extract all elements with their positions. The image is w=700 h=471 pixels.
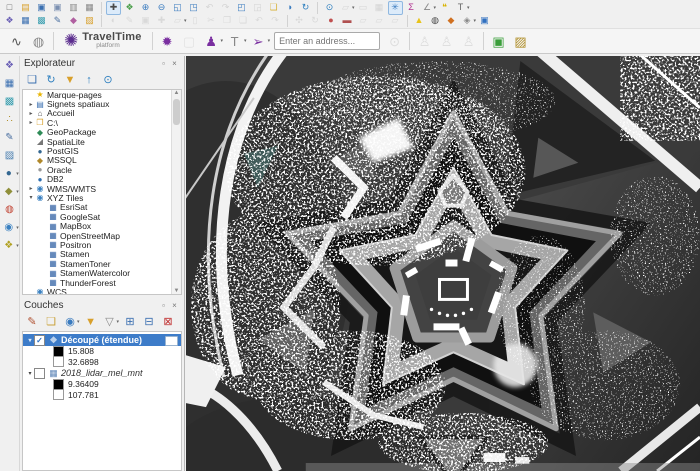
browser-item-spatialite-icon: ◢ — [35, 137, 45, 146]
traveltime-walk-2-icon[interactable]: ♙ — [436, 31, 457, 52]
layer-legend-entry: 32.6898 — [23, 357, 181, 368]
python-console-icon[interactable]: ▣ — [477, 14, 492, 28]
toolbar-separator — [409, 32, 410, 50]
zoom-in-icon[interactable]: ⊕ — [138, 1, 153, 15]
browser-item-googlesat[interactable]: ▦GoogleSat — [23, 212, 181, 221]
add-mesh-layer-icon[interactable]: ▩ — [1, 94, 18, 109]
add-postgis-layer-icon[interactable]: ● — [0, 166, 17, 181]
add-wms-layer-icon[interactable]: ◉ — [0, 220, 17, 235]
browser-item-db2-icon: ● — [35, 175, 45, 184]
browser-collapse-all-icon[interactable]: ↑ — [81, 72, 97, 88]
cut-features-icon[interactable]: ✂ — [204, 14, 219, 28]
osm-clear-icon[interactable]: ▬ — [340, 14, 355, 28]
browser-item-esrisat-icon: ▦ — [48, 203, 58, 212]
expander-icon[interactable]: ▸ — [27, 110, 35, 117]
browser-filter-icon[interactable]: ▼ — [62, 72, 78, 88]
add-wms-layer-icon[interactable]: ▨ — [82, 14, 97, 28]
dropdown-caret-icon[interactable]: ▾ — [268, 38, 271, 44]
browser-add-selected-layers-icon[interactable]: ❏ — [24, 72, 40, 88]
browser-item-mssql-icon: ◆ — [35, 156, 45, 165]
layer-legend-entry: 9.36409 — [23, 379, 181, 390]
collapse-all-icon[interactable]: ⊟ — [141, 314, 157, 330]
dock-panels: Explorateur ▫ × ❏↻▼↑⊙ ★Marque-pages▸▤Sig… — [20, 56, 185, 471]
address-input[interactable] — [274, 32, 380, 50]
dropdown-caret-icon[interactable]: ▾ — [434, 5, 437, 11]
add-virtual-layer-icon[interactable]: ❖ — [0, 238, 17, 253]
paste-features-icon[interactable]: ❏ — [236, 14, 251, 28]
browser-item-accueil[interactable]: ▸⌂Accueil — [23, 109, 181, 118]
add-mesh-layer-icon[interactable]: ▩ — [34, 14, 49, 28]
add-spatialite-layer-icon[interactable]: ◆ — [66, 14, 81, 28]
zoom-out-icon[interactable]: ⊖ — [154, 1, 169, 15]
layer-type-icon: ▦ — [48, 368, 59, 379]
add-oracle-layer-icon[interactable]: ◍ — [1, 202, 18, 217]
browser-item-spatialite[interactable]: ◢SpatiaLite — [23, 137, 181, 146]
browser-item-positron[interactable]: ▦Positron — [23, 240, 181, 249]
copy-features-icon[interactable]: ❐ — [220, 14, 235, 28]
browser-item-c--icon: ❒ — [35, 118, 45, 127]
expander-icon[interactable]: ▾ — [26, 370, 34, 377]
toolbar-row-layers-digitizing: ❖▦▩✎◆▨◐✎▣✚▱▾▯✂❐❏↶↷✣↻●▬▱▱▱▲◍◆◈▾▣ — [2, 14, 492, 27]
expander-icon[interactable]: ▾ — [27, 194, 35, 201]
open-attribute-table-icon[interactable]: ▦ — [372, 1, 387, 15]
save-edits-icon[interactable]: ▣ — [138, 14, 153, 28]
browser-item-postgis[interactable]: ●PostGIS — [23, 146, 181, 155]
browser-item-wms-wmts-icon: ◉ — [35, 184, 45, 193]
browser-toolbar: ❏↻▼↑⊙ — [20, 71, 184, 89]
legend-value: 9.36409 — [68, 379, 99, 389]
pan-to-selection-icon[interactable]: ❖ — [122, 1, 137, 15]
zoom-full-icon[interactable]: ◱ — [170, 1, 185, 15]
add-spatialite-layer-icon[interactable]: ▨ — [1, 148, 18, 163]
zoom-to-layer-icon[interactable]: ◰ — [234, 1, 249, 15]
browser-item-wcs[interactable]: ◉WCS — [23, 287, 181, 295]
dropdown-caret-icon[interactable]: ▾ — [77, 319, 80, 325]
browser-item-stamenwatercolor[interactable]: ▦StamenWatercolor — [23, 268, 181, 277]
toolbar-row-main: □▤▣▣▥▦✚❖⊕⊖◱◳↶↷◰◲❏◑↻⊙▱▾▭▦✳Σ∠▾❝T▾ — [2, 1, 470, 14]
statistical-summary-icon[interactable]: Σ — [404, 1, 419, 15]
browser-item-signets-spatiaux-icon: ▤ — [35, 100, 45, 109]
browser-item-oracle-icon: ● — [35, 165, 45, 174]
traveltime-disabled-icon[interactable]: ▢ — [179, 31, 200, 52]
add-point-cloud-layer-icon[interactable]: ∴ — [1, 112, 18, 127]
filter-legend-expression-icon[interactable]: ▽ — [102, 314, 118, 330]
project-new-icon[interactable]: □ — [2, 1, 17, 15]
qgis-window: □▤▣▣▥▦✚❖⊕⊖◱◳↶↷◰◲❏◑↻⊙▱▾▭▦✳Σ∠▾❝T▾ ❖▦▩✎◆▨◐✎… — [0, 0, 700, 471]
browser-close-button[interactable]: × — [169, 59, 180, 68]
project-open-icon[interactable]: ▤ — [18, 1, 33, 15]
toolbar-separator — [152, 32, 153, 50]
scroll-up-icon[interactable]: ▲ — [174, 90, 180, 96]
layer-item[interactable]: ▾✓❖Découpé (étendue) — [23, 334, 181, 346]
new-map-view-icon[interactable]: ❏ — [266, 1, 281, 15]
select-features-icon[interactable]: ▱ — [338, 1, 353, 15]
browser-item-stamentoner[interactable]: ▦StamenToner — [23, 259, 181, 268]
georeferencer-icon[interactable]: ◍ — [428, 14, 443, 28]
toolbar-separator — [483, 32, 484, 50]
text-annotation-icon[interactable]: T — [453, 1, 468, 15]
refresh-map-icon[interactable]: ↻ — [298, 1, 313, 15]
browser-item-wms-wmts[interactable]: ▸◉WMS/WMTS — [23, 184, 181, 193]
expander-icon[interactable]: ▸ — [27, 185, 35, 192]
add-vector-layer-icon[interactable]: ❖ — [1, 58, 18, 73]
delete-selected-icon[interactable]: ▯ — [188, 14, 203, 28]
pan-map-icon[interactable]: ✚ — [106, 1, 121, 15]
toolbar-separator — [53, 32, 54, 50]
dropdown-caret-icon[interactable]: ▾ — [474, 18, 477, 24]
browser-item-stamentoner-icon: ▦ — [48, 259, 58, 268]
osm-place-search-icon[interactable]: ● — [324, 14, 339, 28]
map-tips-icon[interactable]: ❝ — [437, 1, 452, 15]
map-annotation-icon[interactable]: ▨ — [510, 31, 531, 52]
metasearch-icon[interactable]: ∿ — [6, 31, 27, 52]
legend-value: 15.808 — [68, 346, 94, 356]
layer-visibility-checkbox[interactable]: ✓ — [34, 335, 45, 346]
toolbar-row-plugins: ∿◍ ✺ TravelTime platform ✹▢♟▾T▾➢▾ ⊙ ♙♙♙ … — [0, 28, 700, 54]
rotate-feature-icon[interactable]: ↻ — [308, 14, 323, 28]
layer-name: 2018_lidar_mel_mnt — [61, 368, 143, 378]
traveltime-walk-1-icon[interactable]: ♙ — [414, 31, 435, 52]
add-vector-layer-icon[interactable]: ❖ — [2, 14, 17, 28]
map-render — [186, 56, 700, 471]
browser-item-openstreetmap[interactable]: ▦OpenStreetMap — [23, 231, 181, 240]
layers-toolbar: ✎❏◉▾▼▽▾⊞⊟⊠ — [20, 313, 184, 331]
browser-item-db2[interactable]: ●DB2 — [23, 175, 181, 184]
browser-item-googlesat-icon: ▦ — [48, 212, 58, 221]
expander-icon[interactable]: ▸ — [27, 119, 35, 126]
add-group-icon[interactable]: ❏ — [43, 314, 59, 330]
remove-layer-icon[interactable]: ⊠ — [160, 314, 176, 330]
zoom-to-native-icon[interactable]: ◳ — [186, 1, 201, 15]
add-mssql-layer-icon[interactable]: ◆ — [0, 184, 17, 199]
browser-item-geopackage-icon: ◆ — [35, 128, 45, 137]
identify-features-icon[interactable]: ⊙ — [322, 1, 337, 15]
temporal-controller-icon[interactable]: ◑ — [282, 1, 297, 15]
browser-panel-titlebar: Explorateur ▫ × — [20, 56, 184, 71]
browser-item-label: WCS — [47, 287, 67, 295]
dropdown-caret-icon[interactable]: ▾ — [16, 243, 19, 249]
layers-float-button[interactable]: ▫ — [158, 301, 169, 310]
browser-panel-title: Explorateur — [24, 58, 158, 69]
add-feature-icon[interactable]: ✚ — [154, 14, 169, 28]
browser-item-oracle[interactable]: ●Oracle — [23, 165, 181, 174]
project-save-icon[interactable]: ▣ — [34, 1, 49, 15]
legend-value: 107.781 — [68, 390, 99, 400]
browser-item-xyz-tiles-icon: ◉ — [35, 193, 45, 202]
filter-legend-icon[interactable]: ▼ — [83, 314, 99, 330]
zoom-next-icon[interactable]: ↷ — [218, 1, 233, 15]
traveltime-quick-map-icon[interactable]: ✹ — [157, 31, 178, 52]
dropdown-caret-icon[interactable]: ▾ — [221, 38, 224, 44]
toolbar-separator — [101, 2, 102, 14]
browser-item-signets-spatiaux[interactable]: ▸▤Signets spatiaux — [23, 99, 181, 108]
browser-float-button[interactable]: ▫ — [158, 59, 169, 68]
traveltime-logo-subtitle: platform — [96, 43, 141, 50]
toolbar-separator — [101, 15, 102, 27]
layer-item[interactable]: ▾▦2018_lidar_mel_mnt — [23, 367, 181, 379]
browser-scrollbar-thumb[interactable] — [173, 99, 180, 125]
add-raster-layer-icon[interactable]: ▦ — [1, 76, 18, 91]
add-delimited-text-layer-icon[interactable]: ✎ — [1, 130, 18, 145]
tool-extra-1-icon[interactable]: ▱ — [356, 14, 371, 28]
current-edits-icon[interactable]: ◐ — [106, 14, 121, 28]
traveltime-routes-icon[interactable]: ➢ — [248, 31, 269, 52]
browser-item-thunderforest[interactable]: ▦ThunderForest — [23, 278, 181, 287]
browser-item-geopackage[interactable]: ◆GeoPackage — [23, 128, 181, 137]
legend-swatch — [53, 389, 64, 400]
browser-item-wcs-icon: ◉ — [35, 287, 45, 295]
expander-icon[interactable]: ▾ — [26, 337, 34, 344]
traveltime-time-filter-icon[interactable]: T — [224, 31, 245, 52]
layer-indicator-icon[interactable] — [165, 336, 178, 346]
browser-item-esrisat[interactable]: ▦EsriSat — [23, 203, 181, 212]
move-feature-icon[interactable]: ✣ — [292, 14, 307, 28]
layers-tree: ▾✓❖Découpé (étendue)15.80832.6898▾▦2018_… — [22, 331, 182, 471]
layers-panel-title: Couches — [24, 300, 158, 311]
show-layout-manager-icon[interactable]: ▦ — [82, 1, 97, 15]
browser-item-marque-pages[interactable]: ★Marque-pages — [23, 90, 181, 99]
toolbar-separator — [287, 15, 288, 27]
toolbar-separator — [317, 2, 318, 14]
toggle-editing-icon[interactable]: ✎ — [122, 14, 137, 28]
measure-icon[interactable]: ∠ — [420, 1, 435, 15]
scroll-down-icon[interactable]: ▼ — [174, 288, 180, 294]
plugin-style-icon[interactable]: ◈ — [460, 14, 475, 28]
browser-item-positron-icon: ▦ — [48, 240, 58, 249]
save-project-as-icon[interactable]: ▣ — [50, 1, 65, 15]
layer-legend-entry: 15.808 — [23, 346, 181, 357]
traveltime-logo-icon: ✺ — [64, 31, 78, 51]
browser-panel: Explorateur ▫ × ❏↻▼↑⊙ ★Marque-pages▸▤Sig… — [20, 56, 184, 295]
browser-properties-icon[interactable]: ⊙ — [100, 72, 116, 88]
quick-osm-icon[interactable]: ▣ — [488, 31, 509, 52]
add-raster-layer-icon[interactable]: ▦ — [18, 14, 33, 28]
map-canvas[interactable] — [186, 56, 700, 471]
undo-icon[interactable]: ↶ — [252, 14, 267, 28]
traveltime-walk-3-icon[interactable]: ♙ — [458, 31, 479, 52]
legend-swatch — [53, 346, 64, 357]
browser-item-postgis-icon: ● — [35, 147, 45, 156]
expander-icon[interactable]: ▸ — [27, 101, 35, 108]
browser-item-mapbox[interactable]: ▦MapBox — [23, 221, 181, 230]
browser-item-xyz-tiles[interactable]: ▾◉XYZ Tiles — [23, 193, 181, 202]
redo-icon[interactable]: ↷ — [268, 14, 283, 28]
dropdown-caret-icon[interactable]: ▾ — [16, 225, 19, 231]
layers-close-button[interactable]: × — [169, 301, 180, 310]
traveltime-logo: ✺ TravelTime platform — [64, 31, 142, 51]
add-delimited-text-layer-icon[interactable]: ✎ — [50, 14, 65, 28]
browser-item-thunderforest-icon: ▦ — [48, 278, 58, 287]
browser-refresh-icon[interactable]: ↻ — [43, 72, 59, 88]
browser-item-accueil-icon: ⌂ — [35, 109, 45, 118]
tool-extra-3-icon[interactable]: ▱ — [388, 14, 403, 28]
processing-toolbox-icon[interactable]: ✳ — [388, 1, 403, 15]
browser-item-stamen-icon: ▦ — [48, 250, 58, 259]
layer-visibility-checkbox[interactable] — [34, 368, 45, 379]
browser-item-marque-pages-icon: ★ — [35, 90, 45, 99]
browser-item-mapbox-icon: ▦ — [48, 222, 58, 231]
browser-item-stamenwatercolor-icon: ▦ — [48, 269, 58, 278]
legend-swatch — [53, 379, 64, 390]
browser-item-c-[interactable]: ▸❒C:\ — [23, 118, 181, 127]
new-print-layout-icon[interactable]: ▥ — [66, 1, 81, 15]
layer-legend-entry: 107.781 — [23, 390, 181, 401]
dropdown-caret-icon[interactable]: ▾ — [16, 171, 19, 177]
geocode-search-icon[interactable]: ⊙ — [384, 31, 405, 52]
qgis-web-icon[interactable]: ◍ — [28, 31, 49, 52]
layer-name: Découpé (étendue) — [61, 335, 142, 345]
vertex-tool-icon[interactable]: ▱ — [170, 14, 185, 28]
browser-item-mssql[interactable]: ◆MSSQL — [23, 156, 181, 165]
traveltime-time-map-icon[interactable]: ♟ — [201, 31, 222, 52]
browser-item-label: ThunderForest — [60, 278, 116, 288]
browser-item-openstreetmap-icon: ▦ — [48, 231, 58, 240]
plugin-orange-icon[interactable]: ◆ — [444, 14, 459, 28]
legend-swatch — [53, 356, 64, 367]
open-layer-styling-panel-icon[interactable]: ✎ — [24, 314, 40, 330]
dropdown-caret-icon[interactable]: ▾ — [16, 189, 19, 195]
tool-extra-2-icon[interactable]: ▱ — [372, 14, 387, 28]
layer-source-toolbar: ❖▦▩∴✎▨●▾◆▾◍◉▾❖▾ — [0, 56, 20, 471]
dropdown-caret-icon[interactable]: ▾ — [117, 319, 120, 325]
browser-tree: ★Marque-pages▸▤Signets spatiaux▸⌂Accueil… — [22, 89, 182, 295]
layers-panel: Couches ▫ × ✎❏◉▾▼▽▾⊞⊟⊠ ▾✓❖Découpé (étend… — [20, 298, 184, 471]
toolbar-separator — [407, 15, 408, 27]
dropdown-caret-icon[interactable]: ▾ — [244, 38, 247, 44]
expand-all-icon[interactable]: ⊞ — [122, 314, 138, 330]
browser-item-stamen[interactable]: ▦Stamen — [23, 250, 181, 259]
layers-panel-titlebar: Couches ▫ × — [20, 298, 184, 313]
dropdown-caret-icon[interactable]: ▾ — [467, 5, 470, 11]
layer-type-icon: ❖ — [48, 335, 59, 346]
legend-value: 32.6898 — [68, 357, 99, 367]
zoom-last-icon[interactable]: ↶ — [202, 1, 217, 15]
zoom-to-selection-icon[interactable]: ◲ — [250, 1, 265, 15]
deselect-features-icon[interactable]: ▭ — [356, 1, 371, 15]
log-messages-warning-icon[interactable]: ▲ — [412, 14, 427, 28]
manage-map-themes-icon[interactable]: ◉ — [62, 314, 78, 330]
